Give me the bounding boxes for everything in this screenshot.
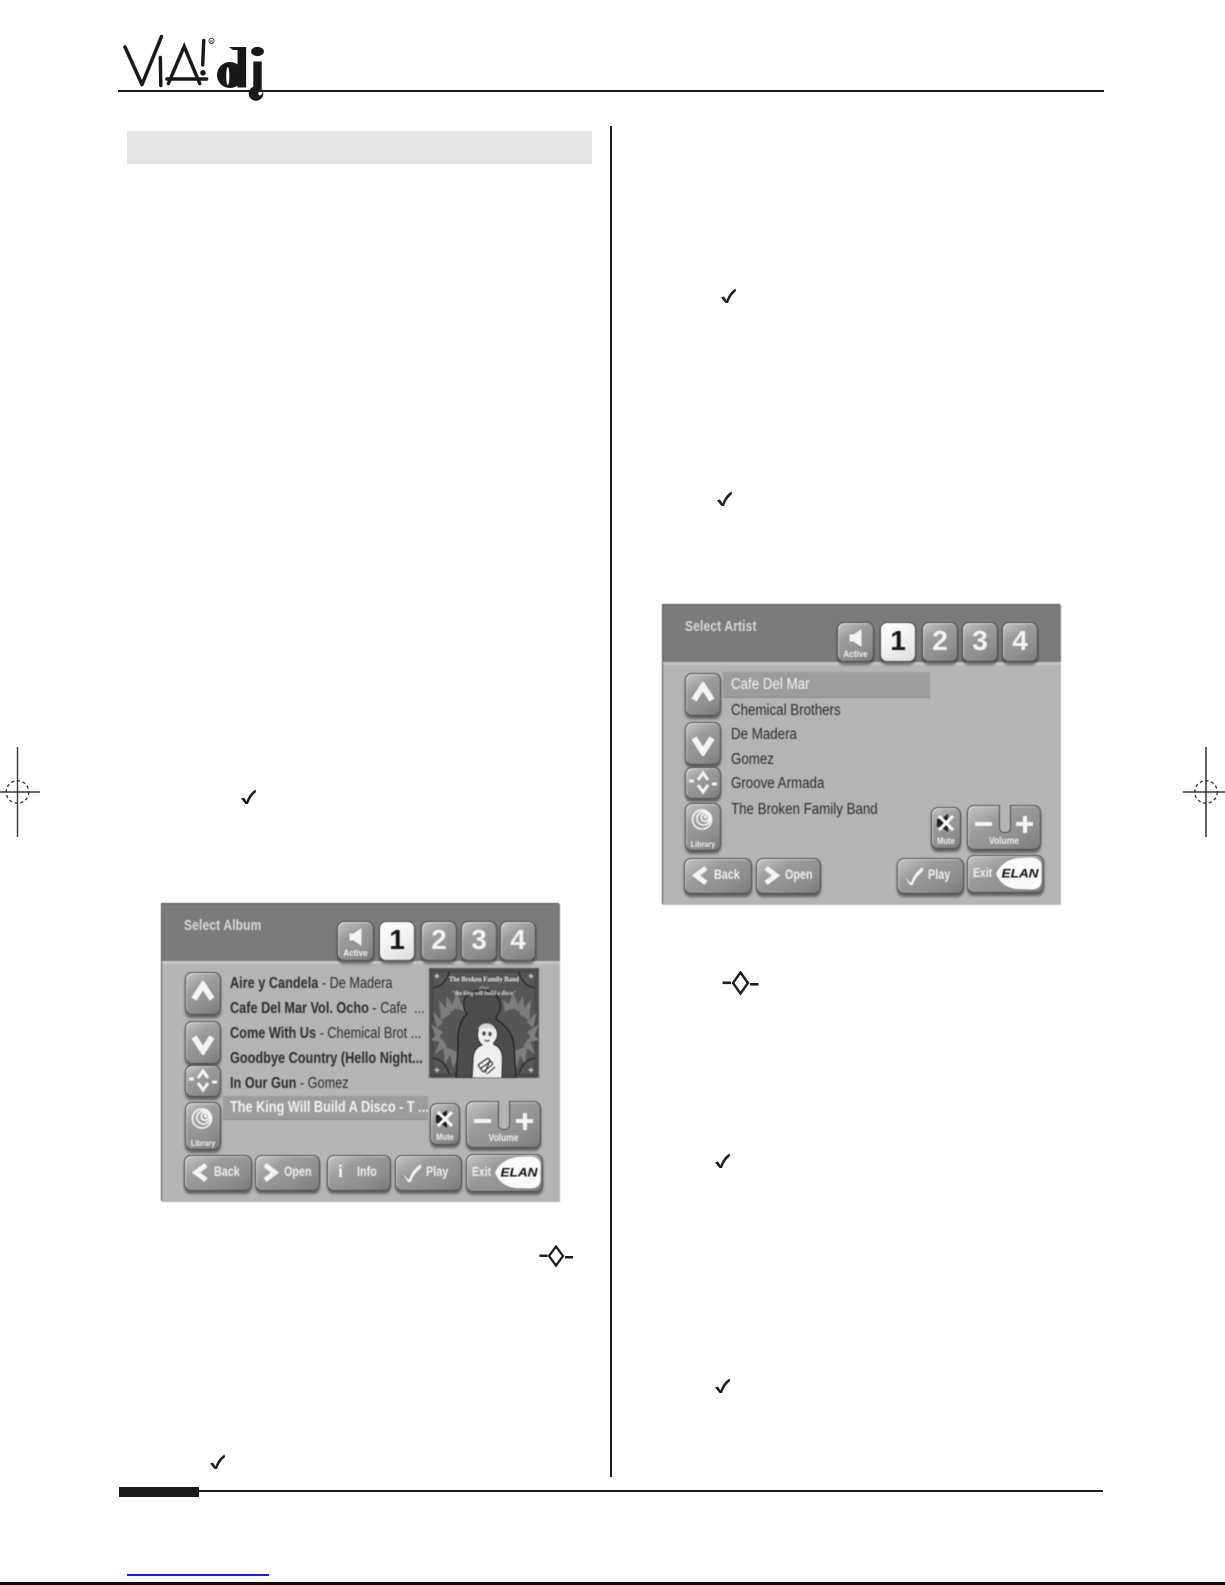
svg-text:ELAN: ELAN	[1002, 869, 1040, 881]
svg-text:The Broken Family Band: The Broken Family Band	[449, 976, 519, 984]
svg-text:plays: plays	[478, 985, 489, 990]
svg-text:"the king will build a disco": "the king will build a disco"	[452, 990, 516, 997]
svg-text:R: R	[210, 39, 213, 44]
svg-text:ELAN: ELAN	[501, 1168, 539, 1180]
